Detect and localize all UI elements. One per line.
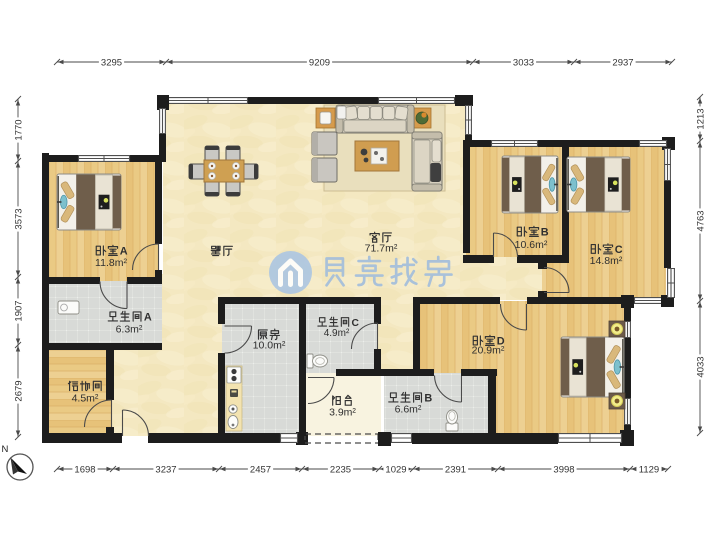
svg-text:2457: 2457: [250, 464, 271, 475]
svg-text:20.9m²: 20.9m²: [472, 344, 505, 356]
svg-text:C: C: [352, 318, 360, 329]
svg-text:N: N: [2, 444, 9, 455]
svg-text:4.9m²: 4.9m²: [324, 328, 350, 339]
svg-text:6.3m²: 6.3m²: [116, 323, 143, 335]
svg-text:2937: 2937: [612, 57, 633, 68]
svg-text:1129: 1129: [639, 464, 659, 475]
svg-text:4.5m²: 4.5m²: [72, 392, 99, 404]
svg-text:3237: 3237: [155, 464, 176, 475]
svg-text:2391: 2391: [445, 464, 466, 475]
svg-text:1213: 1213: [695, 108, 706, 129]
svg-text:6.6m²: 6.6m²: [395, 403, 422, 415]
svg-text:11.8m²: 11.8m²: [95, 257, 127, 269]
svg-text:A: A: [144, 312, 152, 324]
svg-text:1029: 1029: [385, 464, 406, 475]
svg-text:A: A: [120, 246, 128, 258]
svg-text:4033: 4033: [695, 356, 706, 377]
svg-text:1698: 1698: [74, 464, 95, 475]
svg-text:3573: 3573: [13, 208, 24, 229]
svg-text:1907: 1907: [13, 300, 24, 321]
svg-text:14.8m²: 14.8m²: [590, 255, 623, 267]
svg-text:3295: 3295: [101, 57, 122, 68]
svg-text:71.7m²: 71.7m²: [365, 242, 398, 254]
svg-text:2235: 2235: [330, 464, 351, 475]
svg-text:3033: 3033: [513, 57, 534, 68]
svg-text:4763: 4763: [695, 210, 706, 231]
svg-text:3998: 3998: [553, 464, 574, 475]
svg-text:B: B: [424, 393, 432, 405]
svg-text:2679: 2679: [13, 380, 24, 401]
svg-text:9209: 9209: [309, 57, 330, 68]
svg-text:B: B: [541, 227, 549, 239]
svg-text:1770: 1770: [13, 119, 24, 140]
svg-text:10.6m²: 10.6m²: [515, 239, 548, 251]
svg-text:10.0m²: 10.0m²: [253, 339, 286, 351]
svg-text:3.9m²: 3.9m²: [329, 406, 356, 418]
